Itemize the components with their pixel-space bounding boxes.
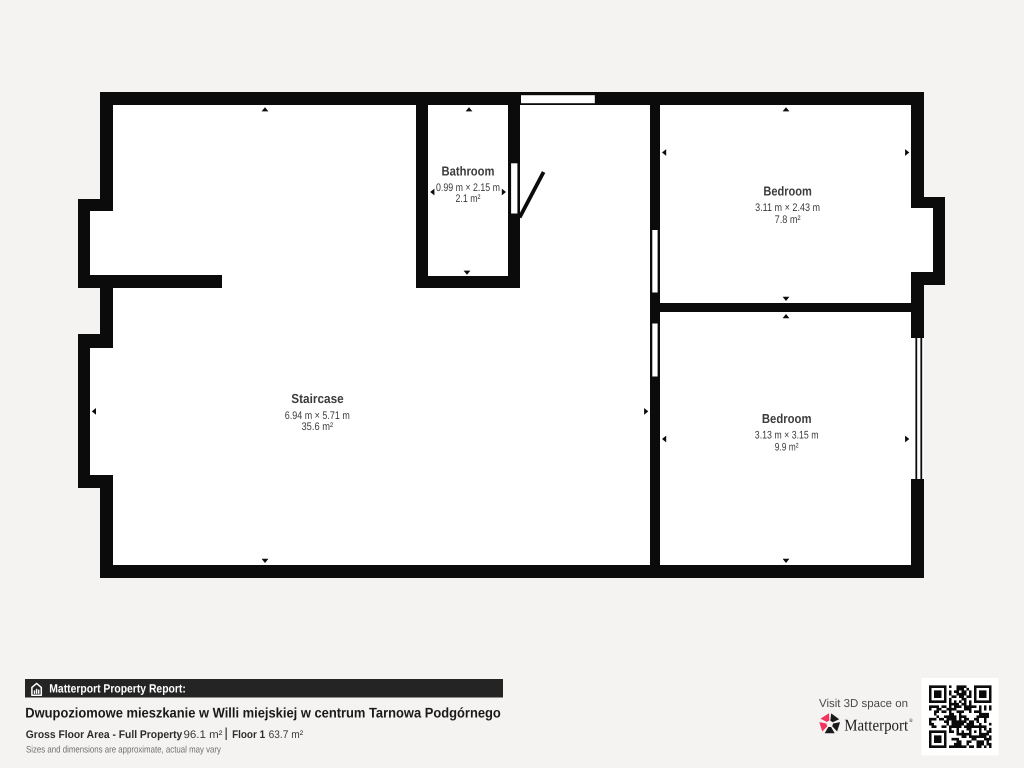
svg-text:0.99 m × 2.15 m: 0.99 m × 2.15 m bbox=[436, 182, 500, 194]
svg-text:96.1 m²: 96.1 m² bbox=[184, 729, 223, 741]
svg-text:Staircase: Staircase bbox=[291, 391, 344, 406]
svg-text:3.11 m × 2.43 m: 3.11 m × 2.43 m bbox=[755, 202, 820, 214]
svg-text:Sizes and dimensions are appro: Sizes and dimensions are approximate, ac… bbox=[26, 744, 221, 755]
svg-text:®: ® bbox=[909, 718, 913, 724]
svg-text:35.6 m²: 35.6 m² bbox=[302, 421, 334, 433]
svg-text:Matterport: Matterport bbox=[844, 716, 908, 735]
svg-text:7.8 m²: 7.8 m² bbox=[775, 214, 801, 226]
svg-text:Dwupoziomowe mieszkanie w Will: Dwupoziomowe mieszkanie w Willi miejskie… bbox=[25, 705, 501, 721]
svg-text:Bedroom: Bedroom bbox=[763, 184, 812, 199]
svg-text:Matterport Property Report:: Matterport Property Report: bbox=[49, 682, 186, 696]
svg-text:Bathroom: Bathroom bbox=[442, 163, 495, 178]
svg-text:Floor 1: Floor 1 bbox=[232, 729, 265, 741]
svg-text:3.13 m × 3.15 m: 3.13 m × 3.15 m bbox=[755, 429, 819, 441]
svg-text:2.1 m²: 2.1 m² bbox=[456, 193, 481, 205]
svg-text:9.9 m²: 9.9 m² bbox=[775, 441, 799, 453]
svg-text:63.7 m²: 63.7 m² bbox=[269, 729, 304, 741]
svg-text:6.94 m × 5.71 m: 6.94 m × 5.71 m bbox=[285, 410, 350, 422]
svg-text:Gross Floor Area - Full Proper: Gross Floor Area - Full Property bbox=[26, 729, 183, 741]
svg-text:Visit 3D space on: Visit 3D space on bbox=[819, 698, 908, 710]
svg-text:Bedroom: Bedroom bbox=[762, 411, 812, 426]
